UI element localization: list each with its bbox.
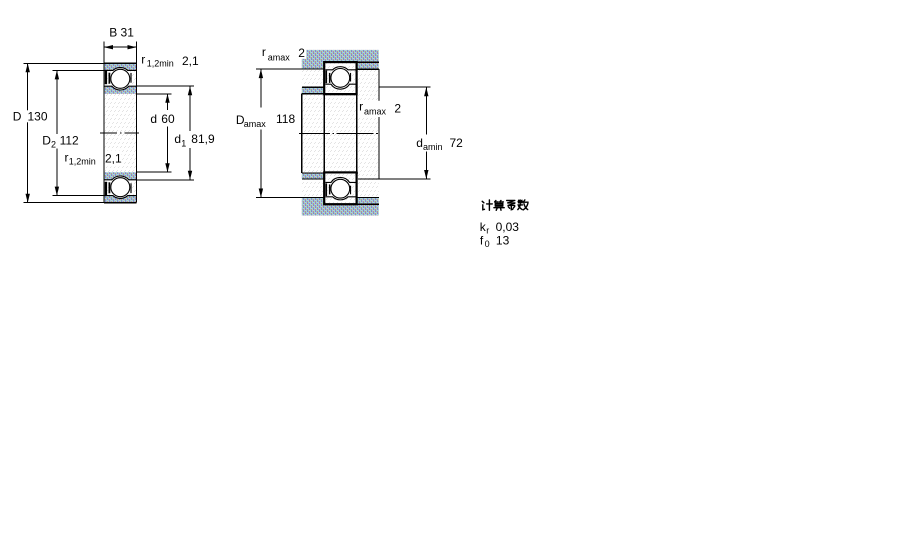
svg-text:1,2min: 1,2min [69,157,96,167]
svg-text:r: r [262,45,266,59]
svg-text:2: 2 [51,139,56,149]
svg-text:d: d [150,112,157,126]
svg-text:2: 2 [394,102,401,116]
svg-text:r: r [359,100,363,114]
svg-text:2: 2 [298,46,305,60]
svg-text:13: 13 [496,233,510,247]
svg-text:2,1: 2,1 [182,54,199,68]
svg-text:0: 0 [485,239,490,249]
svg-text:112: 112 [60,133,79,147]
svg-text:D: D [42,133,51,147]
svg-text:130: 130 [28,110,48,124]
svg-text:amax: amax [364,107,387,117]
svg-text:72: 72 [450,136,464,150]
svg-text:r: r [141,53,145,67]
svg-text:60: 60 [161,112,175,126]
svg-text:d: d [416,136,423,150]
svg-text:0,03: 0,03 [496,220,520,234]
svg-text:d: d [174,132,181,146]
svg-text:1,2min: 1,2min [147,59,174,69]
svg-text:D: D [13,110,22,124]
svg-text:81,9: 81,9 [191,132,215,146]
svg-text:amax: amax [268,52,291,62]
svg-text:amin: amin [423,142,443,152]
svg-text:r: r [486,225,489,235]
svg-text:2,1: 2,1 [105,151,122,165]
svg-text:B 31: B 31 [109,26,134,40]
svg-text:1: 1 [181,138,186,148]
svg-text:118: 118 [276,112,295,126]
svg-text:amax: amax [244,119,267,129]
